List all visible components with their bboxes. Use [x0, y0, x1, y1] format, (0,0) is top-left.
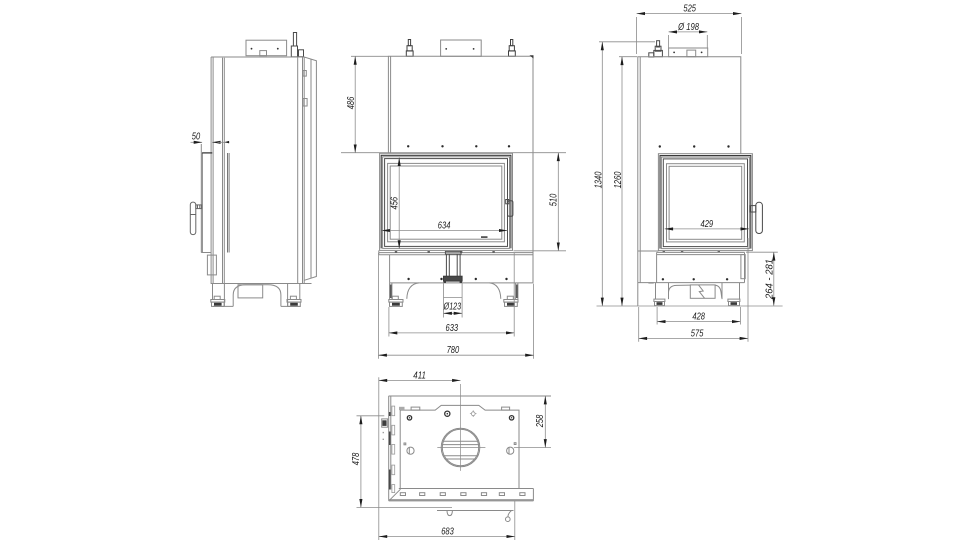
svg-text:478: 478: [350, 453, 362, 466]
svg-text:428: 428: [692, 311, 705, 323]
svg-text:1260: 1260: [612, 171, 624, 188]
svg-text:264 - 281: 264 - 281: [764, 259, 776, 300]
svg-text:575: 575: [691, 327, 704, 339]
svg-text:Ø123: Ø123: [443, 301, 461, 313]
svg-text:510: 510: [547, 194, 559, 207]
svg-text:411: 411: [413, 369, 426, 381]
svg-text:50: 50: [192, 131, 201, 143]
svg-text:258: 258: [534, 415, 546, 428]
svg-text:Ø 198: Ø 198: [677, 21, 699, 33]
svg-text:633: 633: [446, 322, 459, 334]
svg-text:1340: 1340: [593, 171, 605, 188]
svg-text:456: 456: [388, 197, 400, 210]
svg-text:634: 634: [438, 219, 451, 231]
svg-text:486: 486: [345, 97, 357, 110]
svg-text:683: 683: [441, 525, 454, 537]
svg-text:429: 429: [701, 218, 714, 230]
svg-text:525: 525: [683, 2, 696, 14]
svg-text:780: 780: [447, 344, 460, 356]
